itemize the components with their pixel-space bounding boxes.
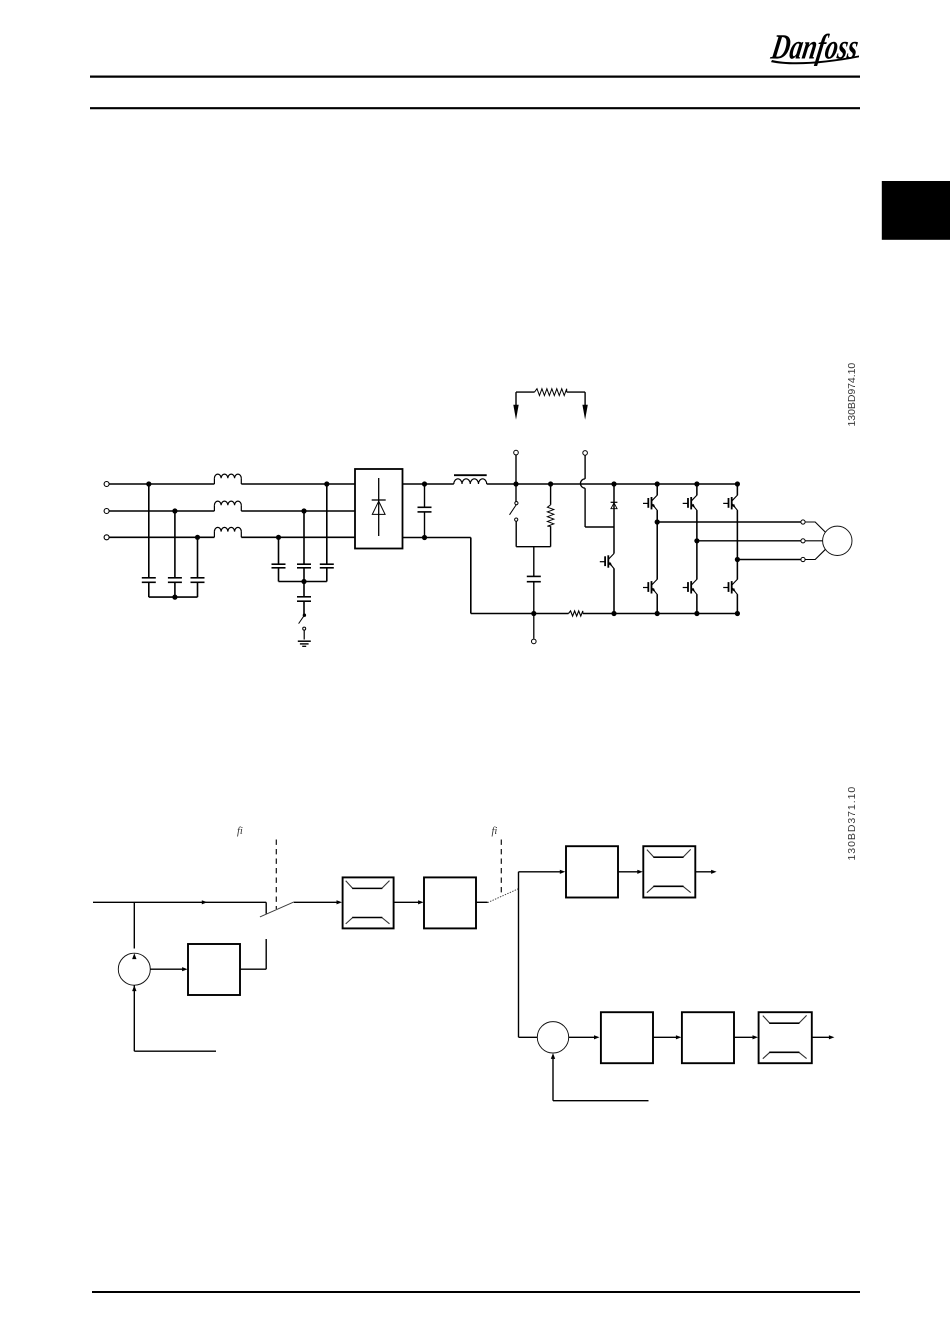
svg-text:fi: fi	[492, 826, 498, 837]
svg-text:Danfoss: Danfoss	[768, 27, 862, 67]
svg-text:fi: fi	[237, 826, 243, 837]
svg-text:130BD974.10: 130BD974.10	[846, 363, 858, 427]
svg-text:130BD371.10: 130BD371.10	[846, 786, 858, 861]
